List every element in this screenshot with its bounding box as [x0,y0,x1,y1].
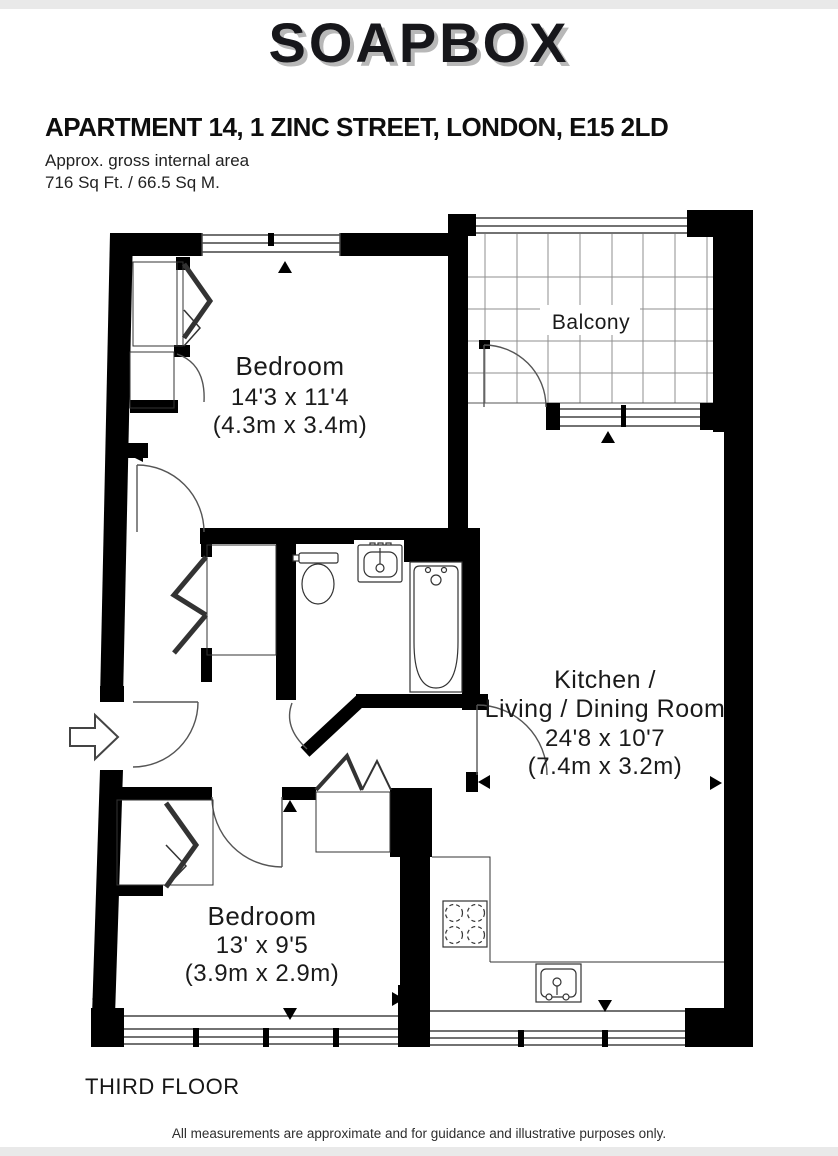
bedroom2-door [212,797,282,867]
bedroom1-closet-bottom [130,352,174,408]
bedroom1-name: Bedroom [236,351,345,381]
bathroom-door-arc [290,703,307,749]
balcony-window [560,405,700,430]
kitchen-fixtures [432,857,724,1002]
disclaimer-text: All measurements are approximate and for… [0,1126,838,1141]
bedroom1-imperial: 14'3 x 11'4 [231,384,349,411]
hob [443,901,487,947]
kitchen-metric: (7.4m x 3.2m) [528,753,683,780]
bedroom2-name: Bedroom [208,901,317,931]
bathtub [410,562,462,692]
entry-door [133,702,198,767]
marker-bedroom1-up [278,261,292,273]
bedroom2-closet [117,800,213,887]
bottom-strip [0,1147,838,1156]
bedroom2-metric: (3.9m x 2.9m) [185,960,340,987]
marker-bedroom2-up [283,800,297,812]
toilet [293,553,338,604]
marker-balcony-up [601,431,615,443]
floor-label: THIRD FLOOR [85,1074,240,1100]
kitchen-sink [536,964,581,1002]
kitchen-line2: Living / Dining Room [485,695,726,723]
bedroom1-window [202,233,340,256]
marker-living-left [478,775,490,789]
floorplan-document: SOAPBOX APARTMENT 14, 1 ZINC STREET, LON… [0,0,838,1156]
balcony-railing [476,216,687,234]
bathroom-fixtures [293,543,462,692]
kitchen-imperial: 24'8 x 10'7 [545,725,665,752]
bedroom1-metric: (4.3m x 3.4m) [213,412,368,439]
balcony-name: Balcony [552,311,630,334]
bedroom1-closet-door-arc [177,354,204,402]
kitchen-window [430,1008,685,1047]
bedroom1-door [137,465,204,532]
kitchen-line1: Kitchen / [554,666,656,694]
marker-living-right [710,776,722,790]
floorplan-drawing: Bedroom 14'3 x 11'4 (4.3m x 3.4m) Balcon… [0,0,838,1156]
bedroom1-closet-top [133,262,210,346]
hall-storage-closet [316,756,391,852]
bathroom-sink [358,543,402,582]
bedroom2-window [124,1012,398,1047]
entrance-arrow-icon [70,715,118,759]
hallway-closet [174,545,276,655]
bedroom2-imperial: 13' x 9'5 [216,932,308,959]
balcony-door [484,345,546,407]
